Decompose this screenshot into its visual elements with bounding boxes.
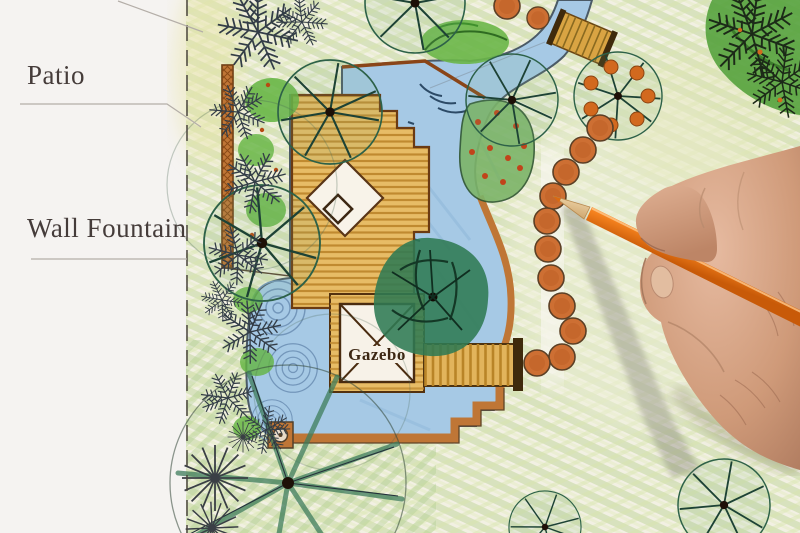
landscape-plan-photo: Gazebo [0,0,800,533]
plan-canvas: Gazebo [0,0,800,533]
gazebo-label: Gazebo [348,345,406,364]
patio-label: Patio [27,60,85,90]
wall-fountain-label: Wall Fountain [27,213,187,243]
boardwalk-endcap [513,338,523,391]
dense-tree [374,238,489,356]
